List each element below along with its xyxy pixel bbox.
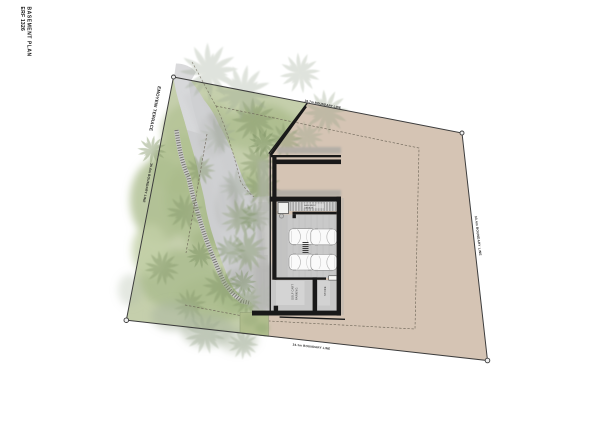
svg-text:ERF 1326: ERF 1326 [19,7,25,32]
svg-text:GARAGE: GARAGE [304,206,314,209]
svg-text:34.1m BOUNDARY LINE: 34.1m BOUNDARY LINE [292,343,330,351]
svg-text:EMOYENI TERRACE: EMOYENI TERRACE [148,86,162,132]
svg-text:GOLF CART: GOLF CART [291,284,295,300]
svg-text:BASEMENT PLAN: BASEMENT PLAN [25,7,31,57]
svg-text:STORE: STORE [323,286,327,296]
svg-text:PARKING: PARKING [294,287,298,300]
